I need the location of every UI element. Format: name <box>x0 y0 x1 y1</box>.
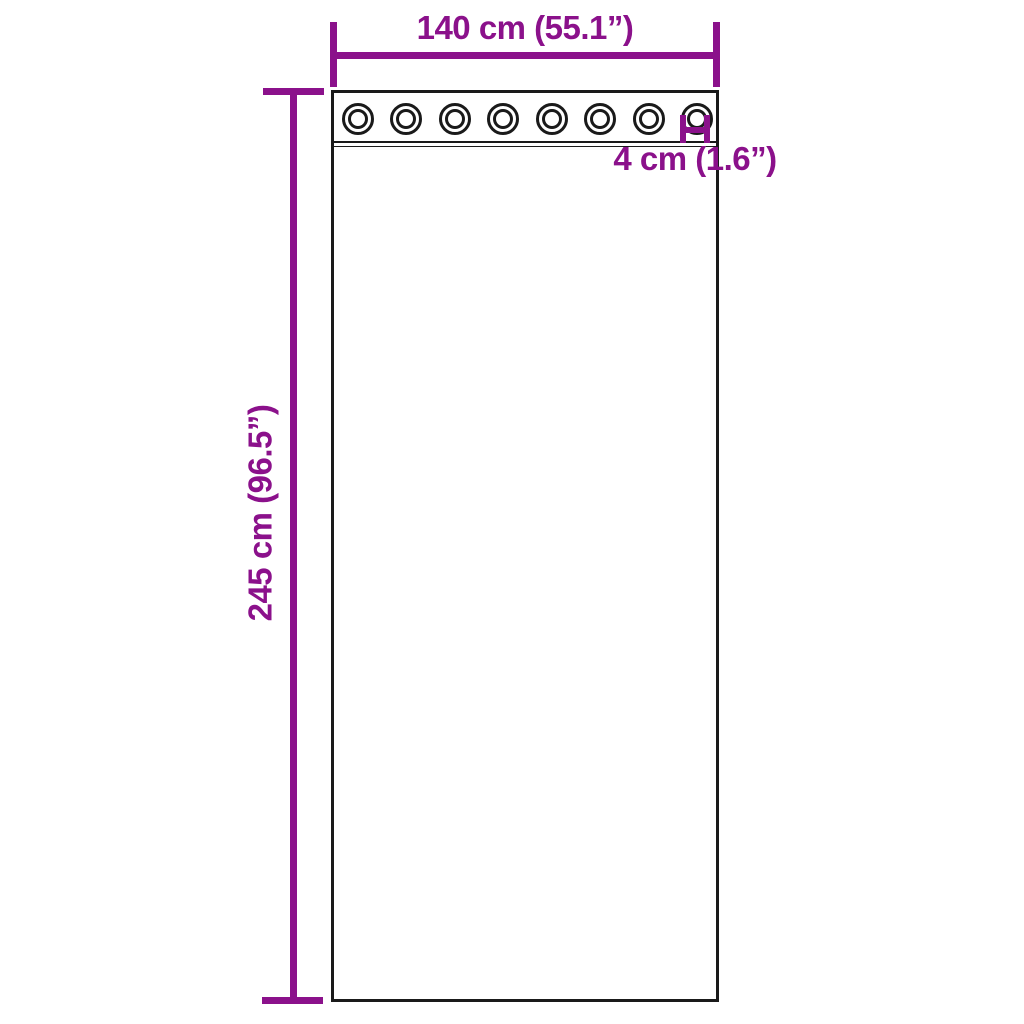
grommet-icon <box>536 103 568 135</box>
grommet-hole <box>493 109 513 129</box>
grommet-diameter-label: 4 cm (1.6”) <box>613 142 776 175</box>
grommet-icon <box>487 103 519 135</box>
grommet-icon <box>584 103 616 135</box>
grommet-icon <box>633 103 665 135</box>
grommet-hole <box>542 109 562 129</box>
grommet-bracket-bar <box>680 127 710 133</box>
grommet-hole <box>445 109 465 129</box>
grommet-icon <box>342 103 374 135</box>
grommet-row <box>342 103 713 135</box>
diagram-canvas: 140 cm (55.1”) 245 cm (96.5”) 4 cm (1.6”… <box>0 0 1024 1024</box>
grommet-hole <box>348 109 368 129</box>
height-dimension-label: 245 cm (96.5”) <box>244 405 277 622</box>
grommet-icon <box>390 103 422 135</box>
curtain-panel-outline <box>331 90 719 1002</box>
grommet-hole <box>639 109 659 129</box>
height-dimension-line <box>290 91 297 1001</box>
width-dimension-line <box>333 52 718 59</box>
grommet-icon <box>439 103 471 135</box>
grommet-hole <box>590 109 610 129</box>
width-dimension-label: 140 cm (55.1”) <box>417 11 634 44</box>
grommet-hole <box>396 109 416 129</box>
